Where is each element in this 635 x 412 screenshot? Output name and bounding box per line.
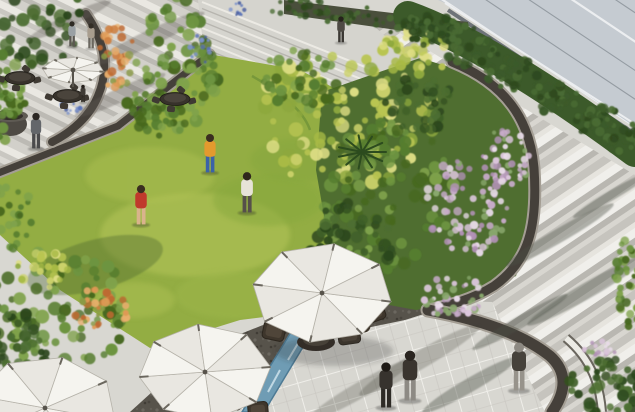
umbrella-rib	[77, 57, 78, 59]
person-leg	[520, 369, 525, 391]
person-leg	[514, 369, 519, 391]
person-shadow	[238, 211, 256, 216]
umbrella-finial	[71, 68, 76, 73]
person-shadow	[28, 147, 44, 151]
umbrella-rib	[253, 284, 263, 285]
umbrella-finial	[320, 291, 325, 296]
person-leg	[243, 194, 247, 212]
cafe-table-top	[57, 91, 79, 100]
person-shadow	[85, 48, 96, 51]
person-torso	[403, 359, 418, 380]
person-torso	[80, 88, 85, 95]
person-head	[206, 134, 214, 142]
umbrella-rib	[89, 79, 92, 80]
person-torso	[337, 21, 345, 32]
person-head	[32, 113, 39, 120]
person-shadow	[399, 398, 422, 404]
person-head	[405, 351, 415, 361]
person-torso	[379, 370, 392, 389]
person-leg	[83, 94, 85, 102]
person-shadow	[335, 42, 347, 45]
person-leg	[92, 37, 94, 48]
umbrella-rib	[48, 77, 51, 78]
umbrella-rib	[69, 81, 70, 83]
umbrella-rib	[261, 367, 270, 368]
person-head	[243, 172, 251, 180]
person-leg	[88, 37, 90, 48]
person-torso	[204, 141, 215, 157]
person-shadow	[79, 102, 87, 104]
courtyard-rendering-canvas	[0, 0, 635, 412]
cafe-chair	[12, 85, 20, 92]
umbrella-rib	[381, 300, 391, 301]
cafe-chair	[60, 103, 68, 110]
person-leg	[206, 155, 210, 172]
person-leg	[405, 378, 410, 400]
person-torso	[31, 119, 41, 134]
person-head	[81, 85, 85, 89]
umbrella-finial	[43, 406, 48, 411]
person-shadow	[132, 223, 150, 228]
person-leg	[69, 35, 71, 46]
person-leg	[411, 378, 416, 400]
person-head	[514, 343, 524, 353]
person-leg	[137, 207, 141, 225]
person-torso	[87, 28, 94, 38]
person-head	[381, 362, 390, 371]
person-leg	[37, 132, 40, 148]
person-leg	[338, 31, 340, 43]
person-torso	[512, 351, 526, 371]
person-leg	[381, 387, 385, 407]
person-shadow	[66, 46, 77, 49]
person-leg	[387, 387, 391, 407]
person-head	[88, 23, 93, 28]
person-leg	[248, 194, 252, 212]
person-torso	[68, 26, 75, 36]
person-head	[338, 16, 343, 21]
cafe-table-top	[9, 73, 31, 82]
umbrella-rib	[94, 62, 97, 63]
umbrella-rib	[54, 60, 57, 61]
cafe-chair	[167, 106, 175, 113]
umbrella-finial	[203, 370, 208, 375]
person-shadow	[376, 405, 397, 410]
umbrella-rib	[139, 376, 148, 377]
person-shadow	[508, 388, 530, 394]
umbrella-shadow	[275, 336, 394, 366]
person-head	[137, 185, 145, 193]
person-leg	[142, 207, 146, 225]
person-shadow	[201, 171, 219, 175]
person-head	[69, 21, 74, 26]
person-leg	[211, 155, 215, 172]
person-leg	[73, 35, 75, 46]
cafe-table-top	[164, 94, 186, 103]
person-leg	[81, 94, 83, 102]
courtyard-rendering-image	[0, 0, 635, 412]
person-torso	[241, 179, 253, 196]
person-torso	[135, 192, 146, 208]
person-leg	[342, 31, 344, 43]
person-leg	[32, 132, 35, 148]
umbrella-rib	[198, 324, 199, 331]
